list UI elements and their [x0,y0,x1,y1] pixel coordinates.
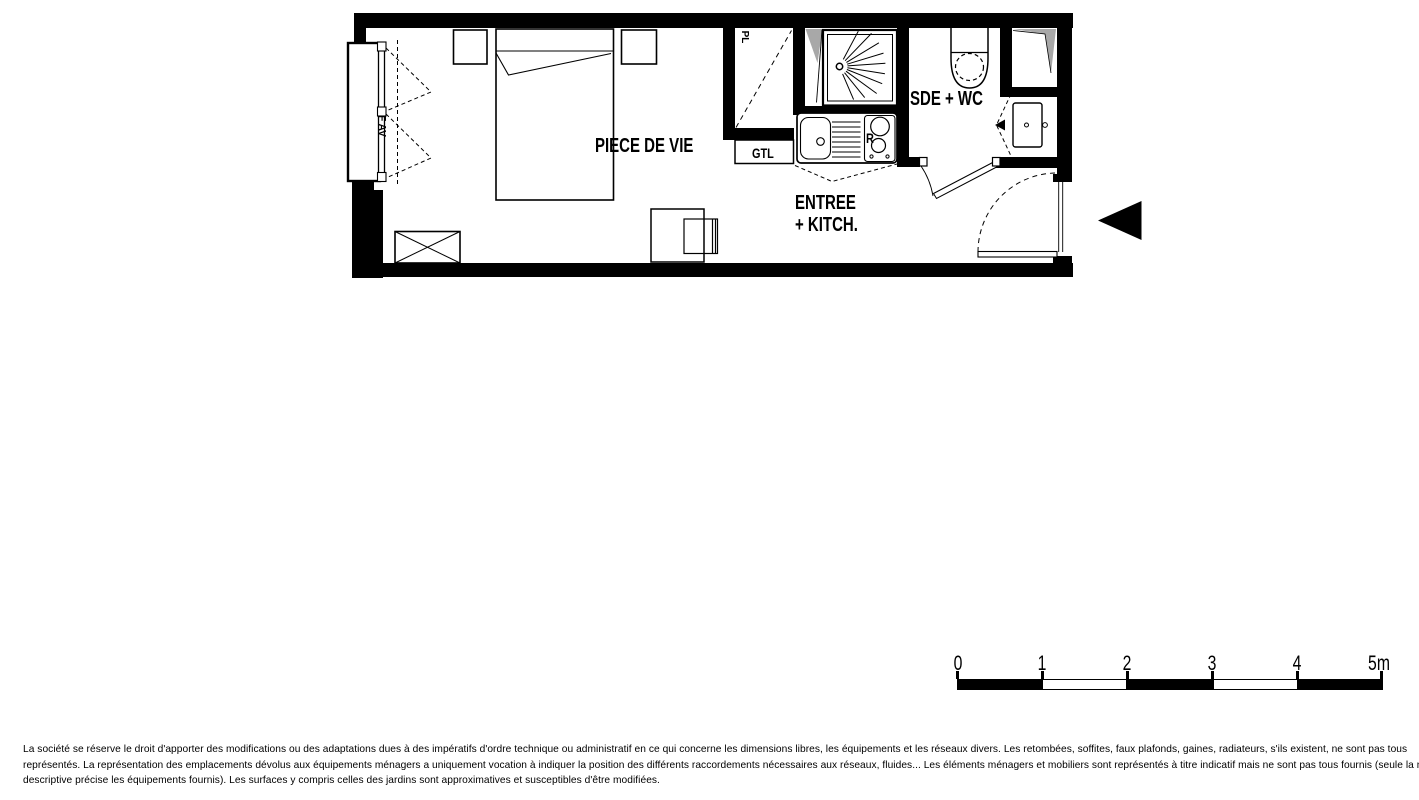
shower [823,30,897,106]
scale-tick [1380,671,1383,679]
washbasin [1013,103,1047,147]
label-bathroom: SDE + WC [910,89,983,110]
label-entry-line1: ENTREE [795,193,856,214]
nightstand-left [454,30,488,64]
scale-tick [956,671,959,679]
kitchen-unit [795,113,897,182]
bathroom-door [920,158,1001,199]
floor-plan-page: PIECE DE VIE ENTREE + KITCH. SDE + WC GT… [0,0,1419,800]
window-symbol [348,40,431,186]
label-closet: PL [739,31,749,44]
bed [454,29,657,200]
scale-bar-segment [1213,679,1298,691]
disclaimer-line: représentés. La représentation des empla… [23,758,1419,774]
duct-shaft-2 [1013,29,1056,73]
toilet [951,28,988,88]
radiator [395,232,460,264]
closet-pl [736,31,792,128]
label-window: F AV [376,115,386,137]
disclaimer-line: La société se réserve le droit d'apporte… [23,742,1419,758]
label-living-room: PIECE DE VIE [595,136,693,157]
entrance-arrow-icon [1098,201,1142,240]
scale-tick [1211,671,1214,679]
disclaimer-line: descriptive précise les équipements four… [23,773,1419,789]
scale-bar-segment [1042,679,1127,691]
scale-tick [1296,671,1299,679]
folding-door [995,94,1011,156]
scale-tick [1126,671,1129,679]
duct-shaft-1 [806,29,823,104]
nightstand-right [622,30,657,64]
label-entry-line2: + KITCH. [795,215,858,236]
kitchen-dashed-outline [795,164,897,182]
scale-tick [1041,671,1044,679]
label-gtl: GTL [752,146,774,161]
scale-number: 5m [1363,653,1396,675]
label-fridge: R [866,131,874,146]
scale-bar-segment [957,679,1042,691]
desk-and-chair [651,209,718,262]
entrance-door [978,173,1063,257]
scale-bar-segment [1127,679,1212,691]
scale-bar-segment [1298,679,1383,691]
disclaimer-text: La société se réserve le droit d'apporte… [23,742,1419,789]
